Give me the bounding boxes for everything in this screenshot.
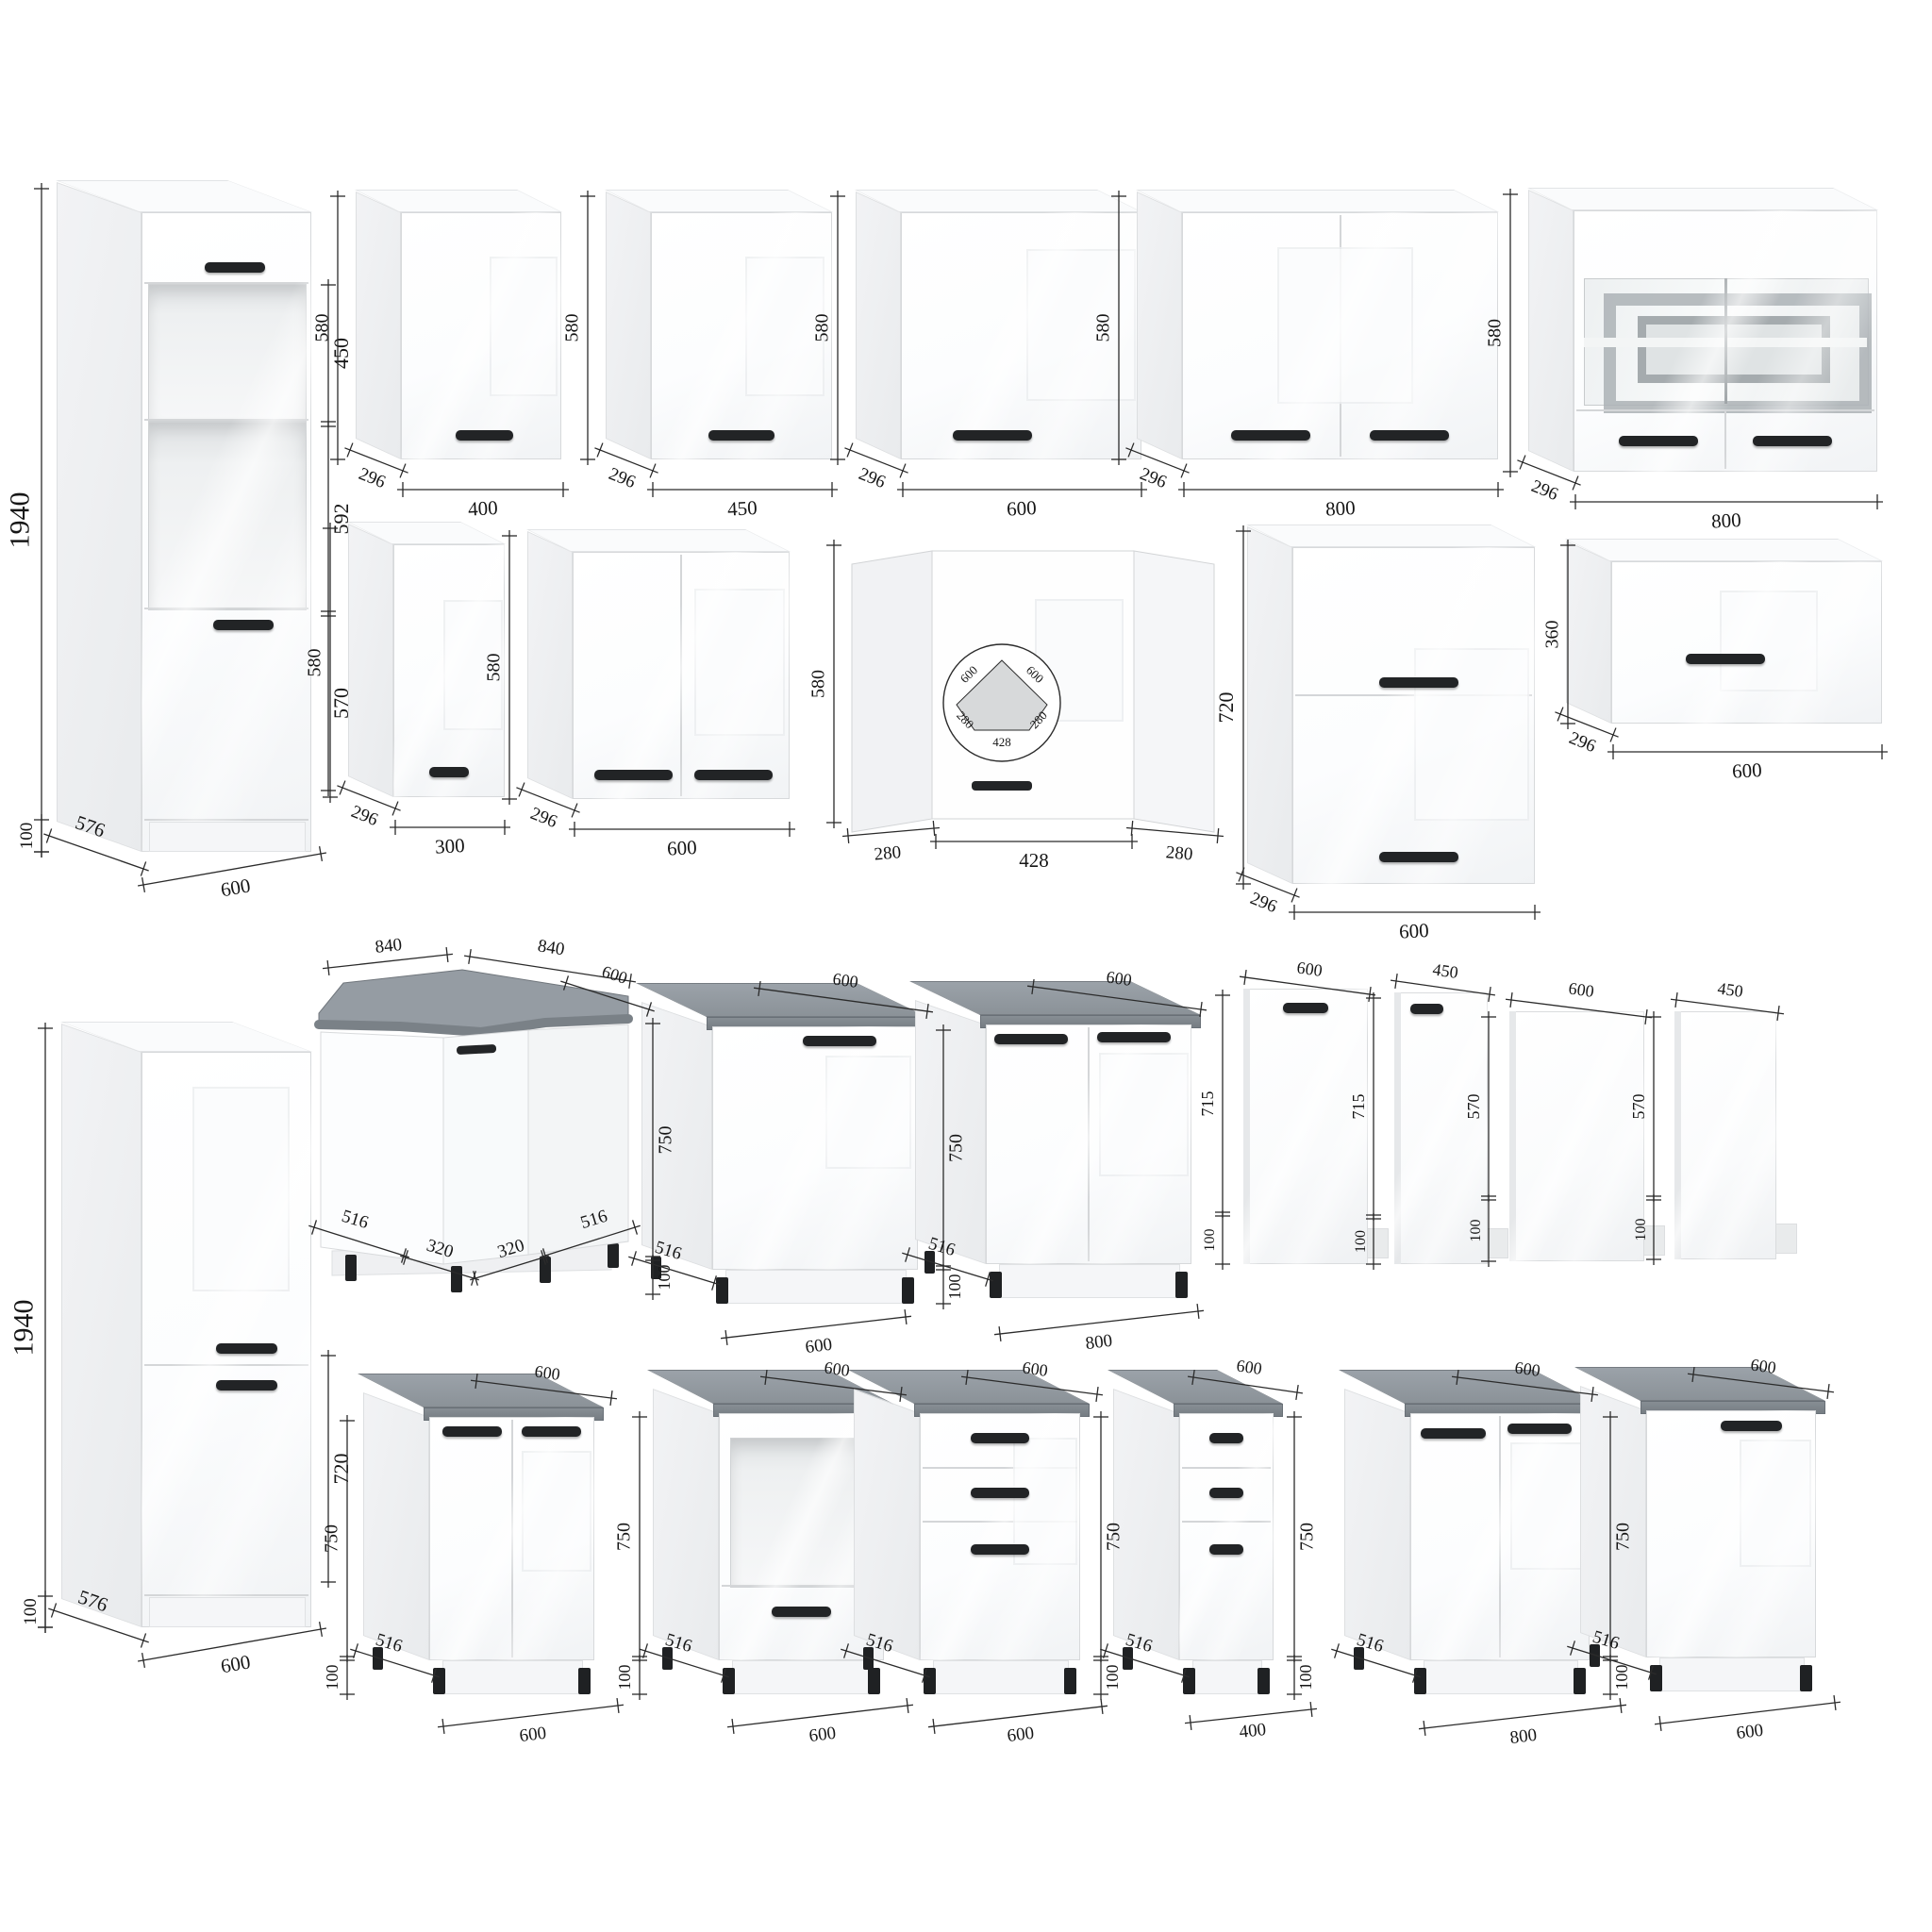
corner-right-front (528, 1024, 628, 1255)
adjustable-leg (451, 1266, 462, 1292)
page: { "page": { "background": "#ffffff", "li… (0, 0, 1932, 1932)
adjustable-leg (540, 1257, 551, 1283)
adjustable-leg (608, 1243, 619, 1268)
plan-dimension-label: 428 (992, 735, 1011, 749)
corner-cabinets-layer: 600600280428280 (0, 0, 1932, 1932)
corner-door-front (443, 1030, 528, 1264)
adjustable-leg (345, 1255, 357, 1281)
corner-left-front (321, 1032, 443, 1264)
door-handle (972, 781, 1032, 791)
corner-wall-right-panel (1134, 551, 1214, 832)
corner-wall-left-panel (852, 551, 932, 832)
